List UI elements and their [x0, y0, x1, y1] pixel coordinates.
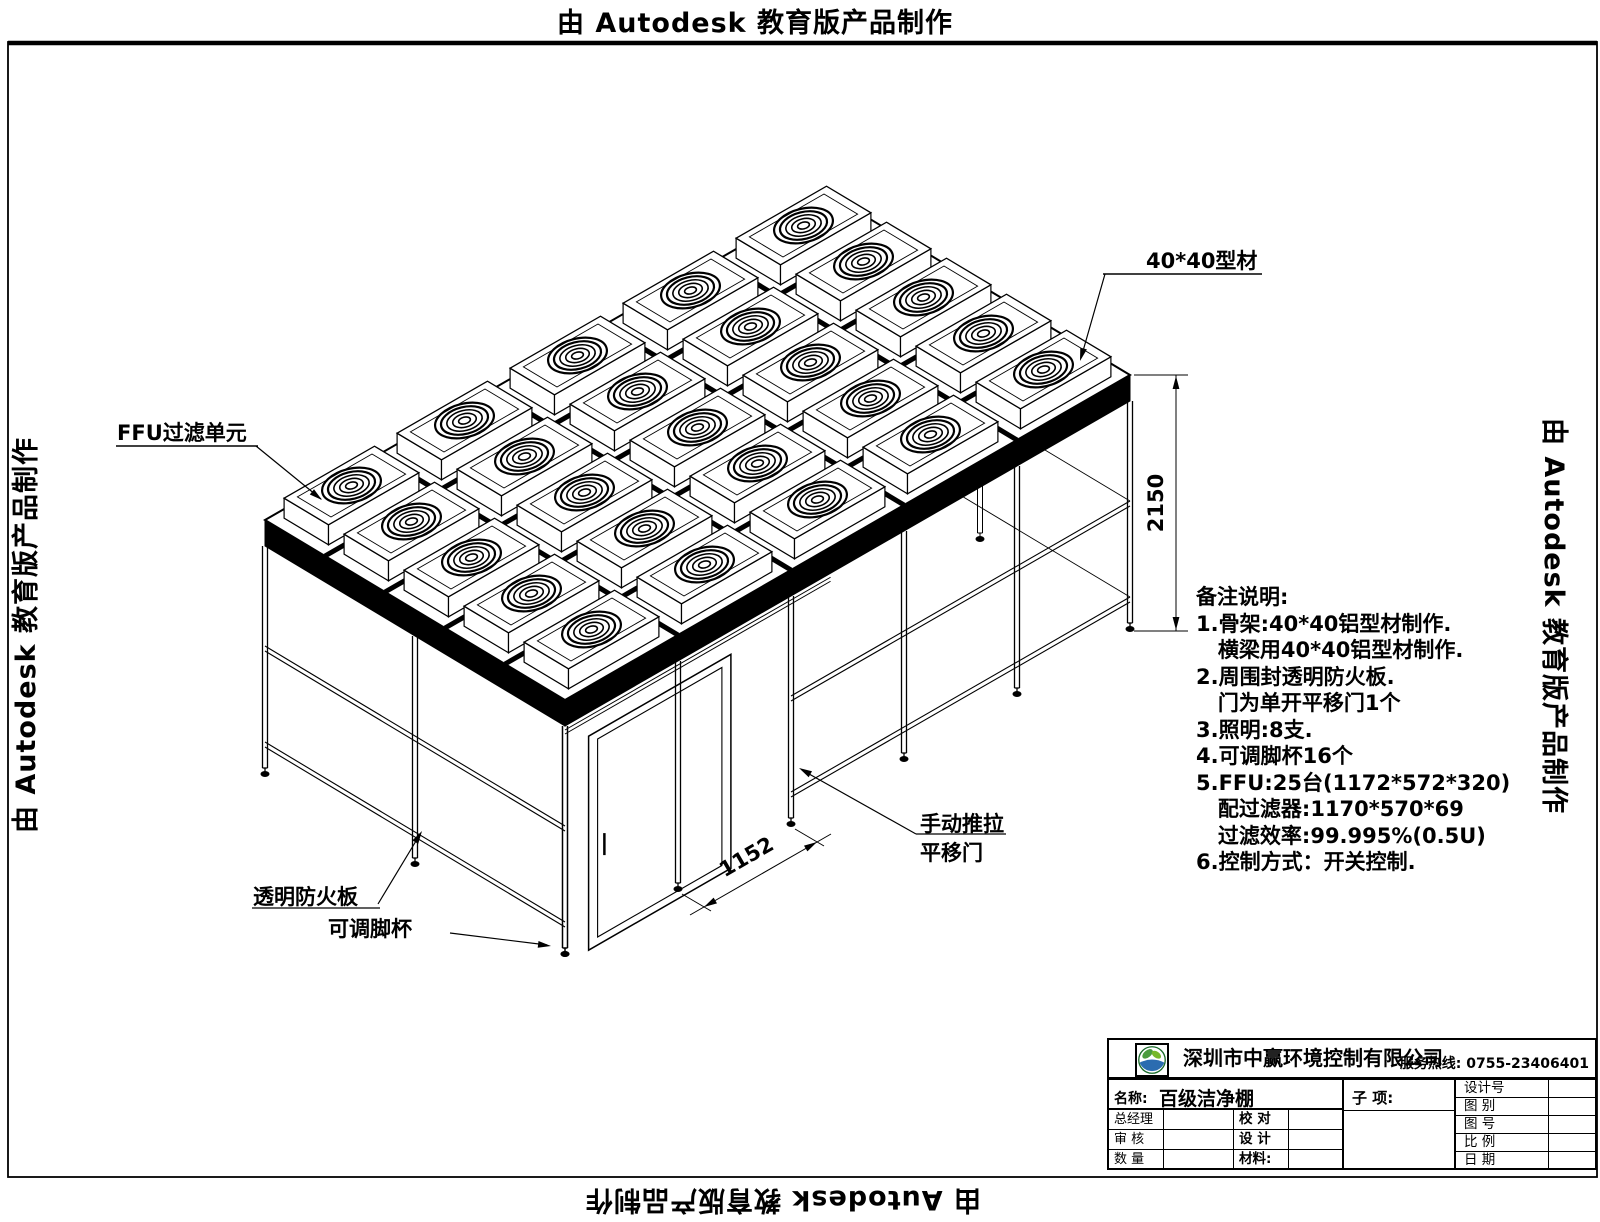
quantity-value: [1164, 1150, 1234, 1170]
design-value: [1289, 1130, 1342, 1149]
row-scale: 比 例: [1456, 1134, 1595, 1152]
subitem-label: 子 项:: [1352, 1087, 1393, 1108]
proofread-value: [1289, 1110, 1342, 1129]
watermark-top: 由 Autodesk 教育版产品制作: [557, 1, 953, 40]
subitem-divider: [1344, 1110, 1454, 1111]
row-design-no: 设计号: [1456, 1080, 1595, 1098]
title-block-right-section: 设计号 图 别 图 号 比 例 日 期: [1456, 1080, 1595, 1168]
row-date: 日 期: [1456, 1152, 1595, 1170]
label-adjustable-foot: 可调脚杯: [328, 913, 412, 943]
material-label: 材料:: [1234, 1150, 1289, 1170]
remarks-notes: 备注说明: 1.骨架:40*40铝型材制作. 横梁用40*40铝型材制作. 2.…: [1196, 584, 1510, 876]
row-figure-type: 图 别: [1456, 1098, 1595, 1116]
dim-height-text: 2150: [1144, 474, 1168, 532]
service-hotline: 服务热线: 0755-23406401: [1400, 1053, 1589, 1073]
watermark-right: 由 Autodesk 教育版产品制作: [1537, 418, 1576, 814]
watermark-left: 由 Autodesk 教育版产品制作: [4, 437, 43, 833]
label-sliding-door-line2: 平移门: [920, 837, 983, 867]
figure-type-value: [1549, 1098, 1595, 1115]
figure-type-label: 图 别: [1456, 1098, 1549, 1115]
title-block-left-section: 名称: 百级洁净棚 总经理 校 对 审 核 设 计 数 量 材料:: [1109, 1080, 1344, 1168]
company-logo-icon: [1135, 1043, 1169, 1077]
name-label: 名称:: [1114, 1088, 1148, 1108]
title-block-header: 深圳市中赢环境控制有限公司 服务热线: 0755-23406401: [1109, 1040, 1595, 1080]
drawing-name: 百级洁净棚: [1159, 1084, 1254, 1111]
figure-no-label: 图 号: [1456, 1116, 1549, 1133]
title-block-subitem-section: 子 项:: [1344, 1080, 1456, 1168]
date-value: [1549, 1152, 1595, 1170]
gm-value: [1164, 1110, 1234, 1129]
row-quantity: 数 量 材料:: [1109, 1150, 1342, 1170]
quantity-label: 数 量: [1109, 1150, 1164, 1170]
row-figure-no: 图 号: [1456, 1116, 1595, 1134]
figure-no-value: [1549, 1116, 1595, 1133]
design-no-label: 设计号: [1456, 1080, 1549, 1097]
audit-label: 审 核: [1109, 1130, 1164, 1149]
dim-door-width-text: 1152: [715, 832, 778, 882]
watermark-bottom: 由 Autodesk 教育版产品制作: [585, 1183, 981, 1222]
label-transparent-fire-panel: 透明防火板: [253, 881, 358, 911]
scale-label: 比 例: [1456, 1134, 1549, 1151]
scale-value: [1549, 1134, 1595, 1151]
design-no-value: [1549, 1080, 1595, 1097]
audit-value: [1164, 1130, 1234, 1149]
label-ffu-filter-unit: FFU过滤单元: [117, 417, 247, 447]
row-audit: 审 核 设 计: [1109, 1130, 1342, 1150]
label-sliding-door-line1: 手动推拉: [920, 808, 1004, 838]
proofread-label: 校 对: [1234, 1110, 1289, 1129]
gm-label: 总经理: [1109, 1110, 1164, 1129]
name-row: 名称: 百级洁净棚: [1109, 1080, 1342, 1110]
cad-sheet: { "watermark": "由 Autodesk 教育版产品制作", "la…: [0, 0, 1600, 1214]
date-label: 日 期: [1456, 1152, 1549, 1170]
row-general-manager: 总经理 校 对: [1109, 1110, 1342, 1130]
label-40x40-profile: 40*40型材: [1146, 245, 1257, 275]
design-label: 设 计: [1234, 1130, 1289, 1149]
material-value: [1289, 1150, 1342, 1170]
title-block: 深圳市中赢环境控制有限公司 服务热线: 0755-23406401 名称: 百级…: [1107, 1038, 1597, 1170]
